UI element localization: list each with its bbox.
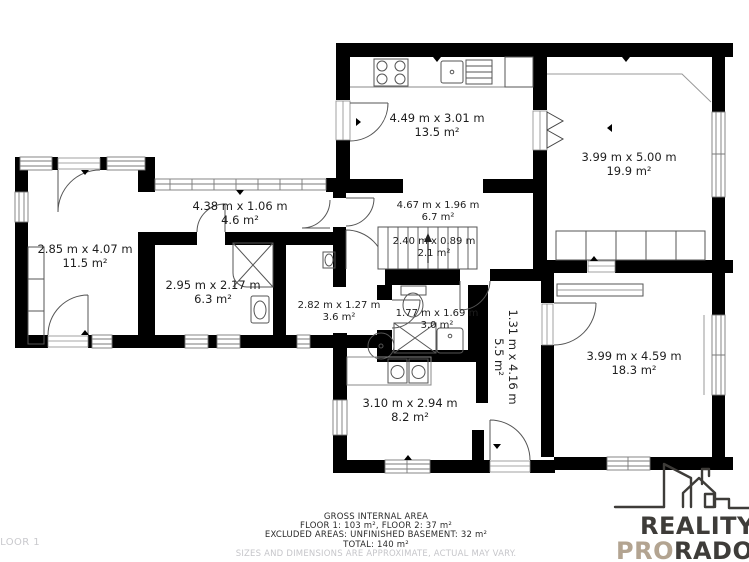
room-label-wc: 1.77 m x 1.69 m3.0 m² xyxy=(396,308,479,332)
logo-accent: PRO xyxy=(616,537,674,562)
stove-icon xyxy=(374,59,408,86)
room-label-utility: 3.10 m x 2.94 m8.2 m² xyxy=(362,397,457,425)
room-label-hallway: 4.67 m x 1.96 m6.7 m² xyxy=(397,200,480,224)
room-label-stairs: 2.40 m x 0.89 m2.1 m² xyxy=(393,236,476,260)
logo-rest: RADOST xyxy=(674,537,749,562)
room-label-left: 2.85 m x 4.07 m11.5 m² xyxy=(37,243,132,271)
room-label-bathroom: 2.95 m x 2.17 m6.3 m² xyxy=(165,279,260,307)
agency-logo-house-icon xyxy=(600,450,749,515)
wardrobe-icon xyxy=(556,231,705,260)
room-label-kitchen: 4.49 m x 3.01 m13.5 m² xyxy=(389,112,484,140)
room-label-bottom-right: 3.99 m x 4.59 m18.3 m² xyxy=(586,350,681,378)
ceiling-line xyxy=(547,74,711,102)
logo-text-reality: REALITY xyxy=(640,514,748,539)
kitchen-sink-icon xyxy=(441,61,463,83)
room-label-corridor-vertical: 1.31 m x 4.16 m5.5 m² xyxy=(491,309,519,404)
logo-text-proradost: PRORADOST xyxy=(616,539,749,562)
toilet-tank-icon xyxy=(401,286,426,295)
room-label-corridor: 4.38 m x 1.06 m4.6 m² xyxy=(192,200,287,228)
room-label-top-right: 3.99 m x 5.00 m19.9 m² xyxy=(581,151,676,179)
double-door xyxy=(547,112,563,148)
cabinet-icon xyxy=(505,57,533,87)
floor-tag: FLOOR 1 xyxy=(0,537,40,548)
area-summary: GROSS INTERNAL AREA FLOOR 1: 103 m², FLO… xyxy=(230,513,522,559)
summary-disclaimer: SIZES AND DIMENSIONS ARE APPROXIMATE, AC… xyxy=(230,550,522,559)
floorplan-page: 4.49 m x 3.01 m13.5 m² 3.99 m x 5.00 m19… xyxy=(0,0,749,562)
room-label-hall-small: 2.82 m x 1.27 m3.6 m² xyxy=(298,300,381,324)
